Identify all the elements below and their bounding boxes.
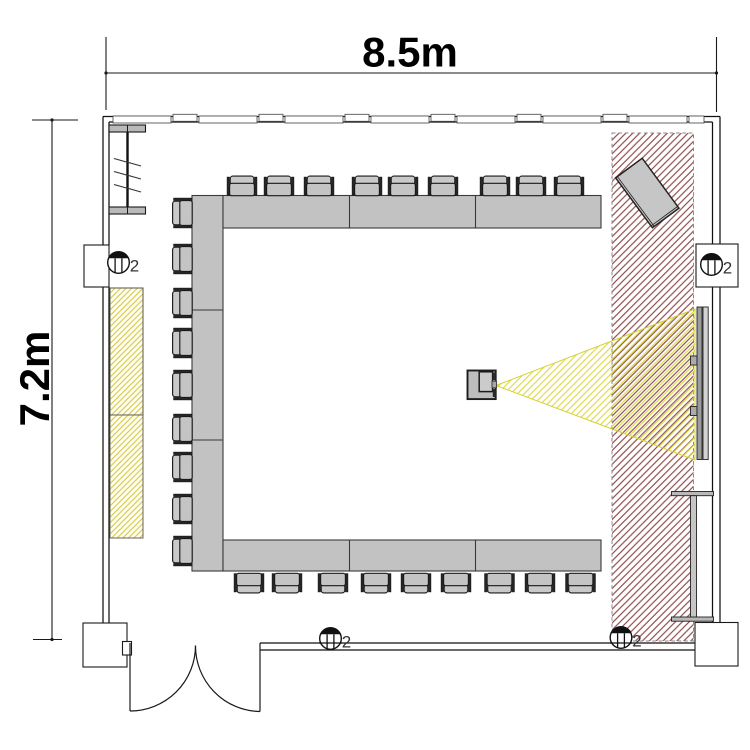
svg-text:2: 2 (632, 632, 641, 651)
svg-text:7.2m: 7.2m (11, 331, 58, 427)
svg-text:8.5m: 8.5m (362, 29, 458, 76)
svg-text:2: 2 (342, 633, 351, 652)
svg-text:2: 2 (723, 259, 732, 278)
svg-text:2: 2 (130, 257, 139, 276)
